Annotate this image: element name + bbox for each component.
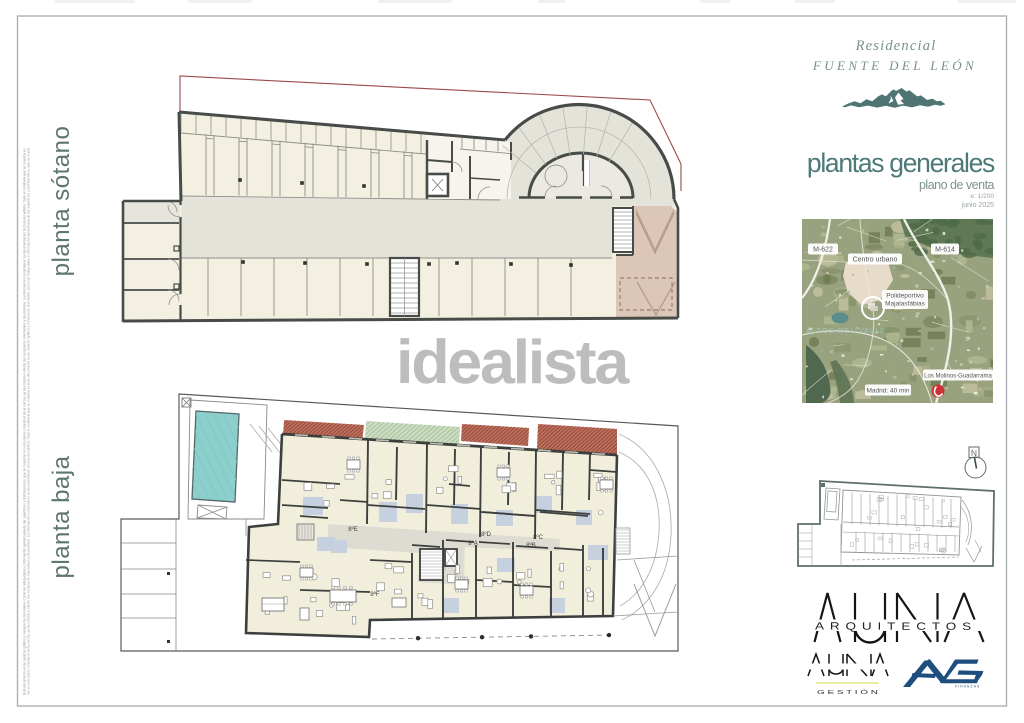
svg-text:ARQUITECTOS: ARQUITECTOS bbox=[815, 621, 977, 633]
svg-text:M-622: M-622 bbox=[813, 247, 833, 254]
svg-text:Residencial: Residencial bbox=[855, 38, 937, 54]
svg-text:ran en este plano, incluido el: ran en este plano, incluido el de la coc… bbox=[27, 148, 31, 695]
svg-text:Centro urbano: Centro urbano bbox=[853, 257, 898, 264]
svg-text:Polideportivo: Polideportivo bbox=[886, 293, 924, 300]
svg-text:8ºF: 8ºF bbox=[370, 591, 380, 598]
svg-text:N: N bbox=[971, 448, 977, 458]
svg-text:Madrid: 40 min: Madrid: 40 min bbox=[867, 388, 910, 395]
svg-text:e: 1/200: e: 1/200 bbox=[971, 193, 995, 200]
svg-text:planta baja: planta baja bbox=[48, 455, 75, 578]
svg-text:junio 2025: junio 2025 bbox=[961, 202, 994, 209]
svg-text:planta sótano: planta sótano bbox=[48, 126, 75, 277]
svg-text:8ºA: 8ºA bbox=[468, 540, 478, 547]
svg-text:Majalasfábias: Majalasfábias bbox=[885, 301, 925, 308]
svg-text:ALTOS DEL VALLE: ALTOS DEL VALLE bbox=[806, 326, 886, 335]
svg-text:plano de venta: plano de venta bbox=[919, 178, 995, 192]
svg-text:G E S T I Ó N: G E S T I Ó N bbox=[817, 689, 879, 696]
svg-text:FINANZAS: FINANZAS bbox=[955, 685, 980, 689]
svg-text:idealista: idealista bbox=[396, 328, 630, 397]
svg-text:8ºE: 8ºE bbox=[348, 526, 358, 533]
svg-text:8ºB: 8ºB bbox=[526, 542, 536, 549]
svg-text:plantas generales: plantas generales bbox=[807, 148, 995, 178]
svg-text:FUENTE DEL LEÓN: FUENTE DEL LEÓN bbox=[812, 58, 977, 73]
svg-text:M-614: M-614 bbox=[935, 247, 955, 254]
svg-text:8ºC: 8ºC bbox=[533, 534, 544, 541]
svg-text:Los Molinos-Guadarrama: Los Molinos-Guadarrama bbox=[924, 374, 992, 380]
svg-text:8ºD: 8ºD bbox=[481, 531, 492, 538]
